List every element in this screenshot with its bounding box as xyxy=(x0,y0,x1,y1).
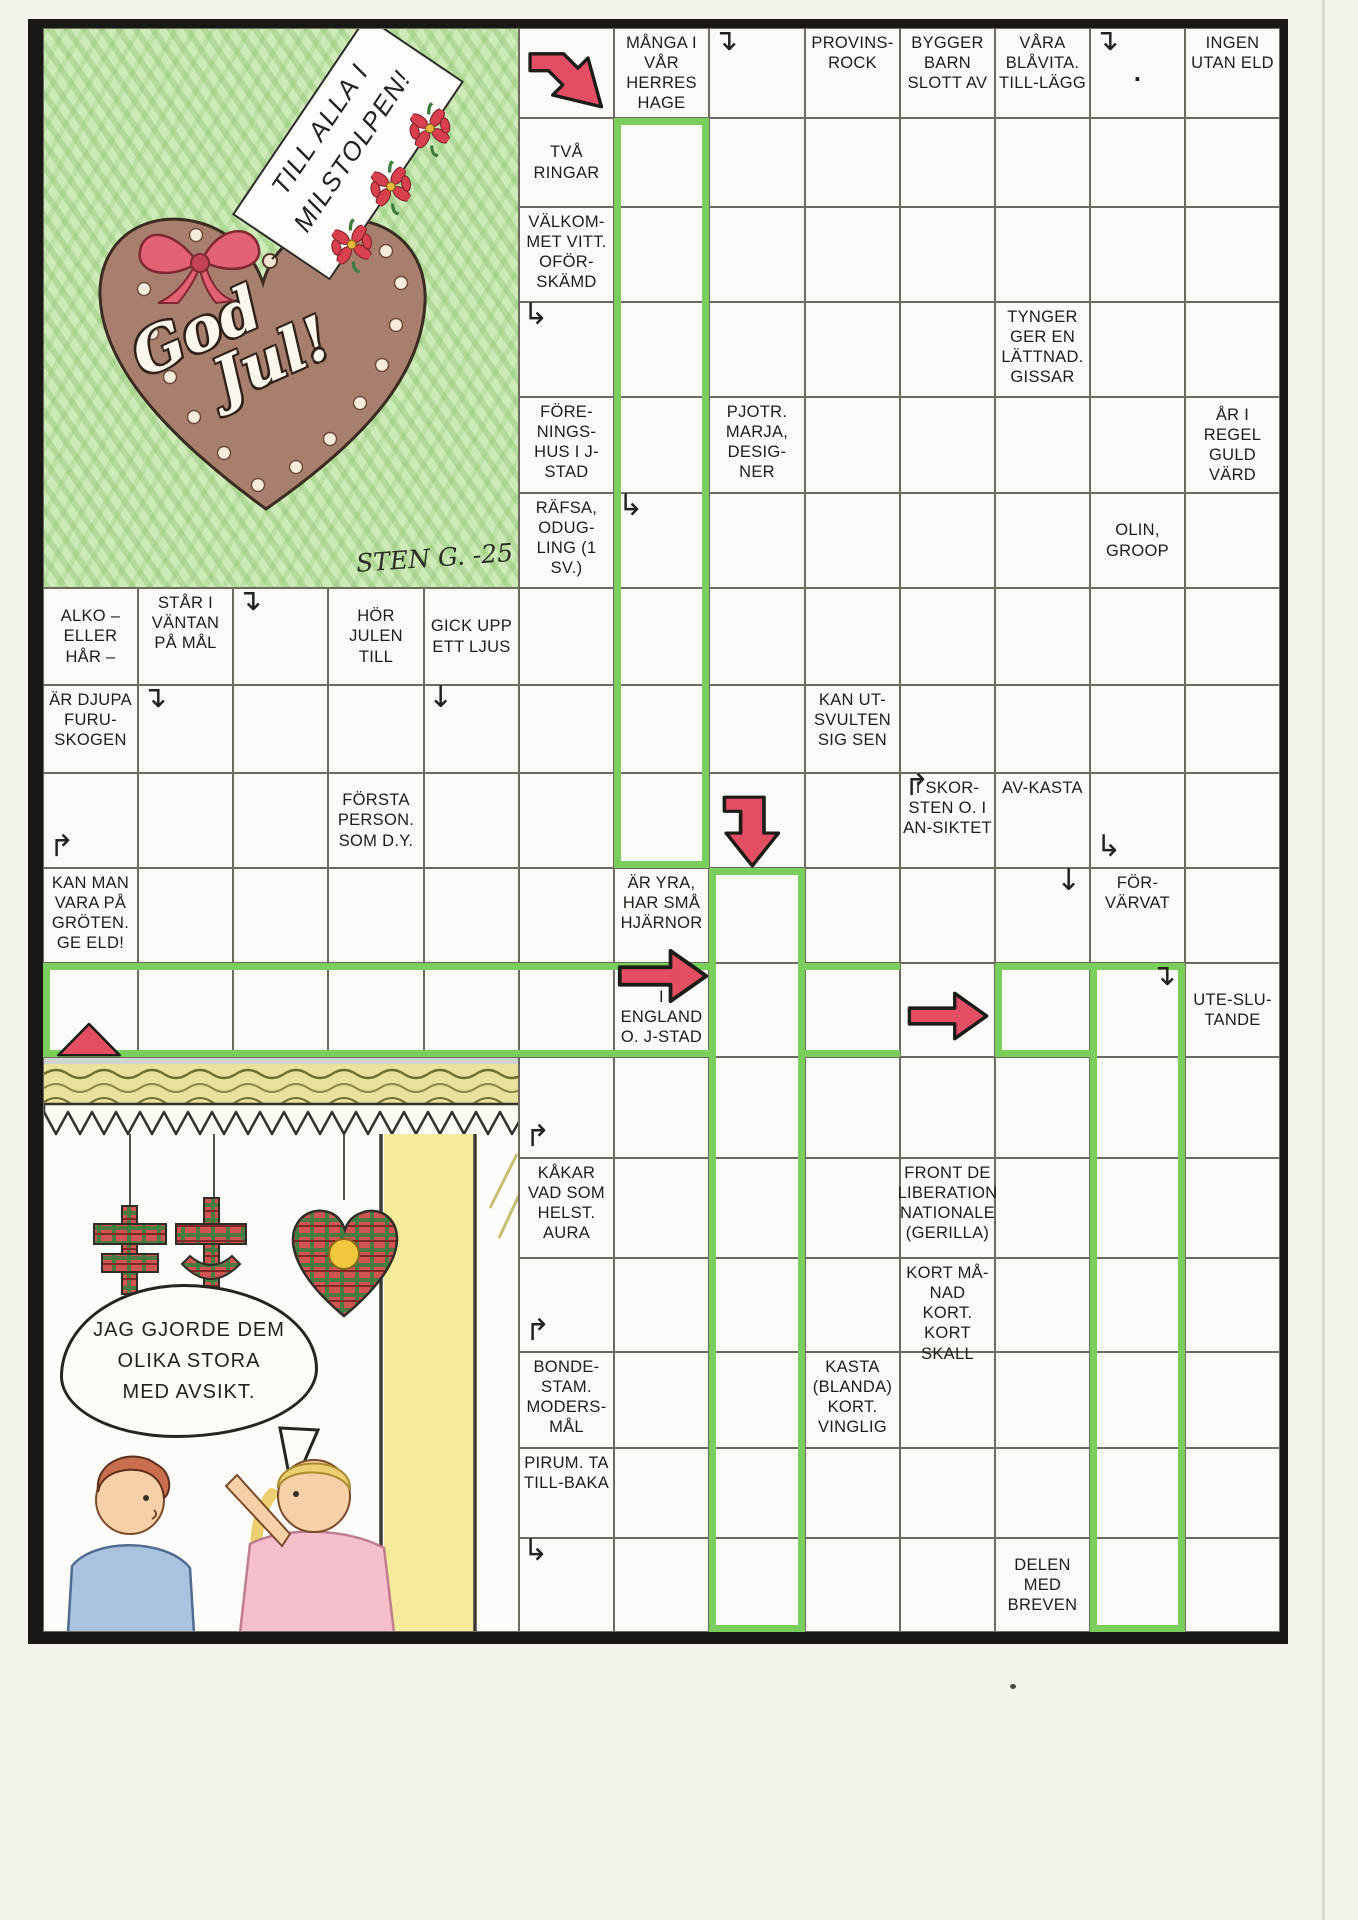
grid-cell[interactable] xyxy=(805,493,900,588)
grid-cell[interactable] xyxy=(614,302,709,397)
boy-character xyxy=(68,1457,194,1632)
grid-cell[interactable] xyxy=(1185,1158,1280,1258)
grid-cell[interactable] xyxy=(900,868,995,963)
cartoon-illustration: JAG GJORDE DEM OLIKA STORA MED AVSIKT. xyxy=(43,1057,519,1632)
grid-cell[interactable] xyxy=(995,588,1090,685)
grid-cell[interactable] xyxy=(709,1538,805,1632)
grid-cell[interactable] xyxy=(805,118,900,207)
grid-cell[interactable] xyxy=(519,1057,614,1158)
grid-cell[interactable] xyxy=(138,773,233,868)
red-triangle-up-icon xyxy=(55,1021,123,1057)
clue-cell: MÅNGA I VÅR HERRES HAGE xyxy=(614,28,709,118)
grid-cell[interactable] xyxy=(614,207,709,302)
grid-cell[interactable] xyxy=(995,963,1090,1057)
grid-cell[interactable] xyxy=(805,1538,900,1632)
plaid-cross-ornament xyxy=(94,1206,166,1294)
clue-cell: KAN UT-SVULTEN SIG SEN xyxy=(805,685,900,773)
grid-cell[interactable] xyxy=(900,588,995,685)
clue-cell: I SKOR-STEN O. I AN-SIKTET xyxy=(900,773,995,868)
grid-cell[interactable] xyxy=(1090,1057,1185,1158)
grid-cell[interactable] xyxy=(709,1448,805,1538)
grid-cell[interactable] xyxy=(233,685,328,773)
clue-cell: KAN MAN VARA PÅ GRÖTEN. GE ELD! xyxy=(43,868,138,963)
grid-cell[interactable] xyxy=(519,868,614,963)
grid-cell[interactable] xyxy=(805,868,900,963)
ribbon-bow-icon xyxy=(132,209,282,314)
grid-cell[interactable] xyxy=(43,773,138,868)
grid-cell[interactable] xyxy=(1185,1352,1280,1448)
speech-bubble-line1: JAG GJORDE DEM xyxy=(63,1315,315,1346)
grid-cell[interactable] xyxy=(900,397,995,493)
girl-character xyxy=(226,1460,394,1632)
grid-cell[interactable] xyxy=(424,963,519,1057)
clue-cell: FÖRSTA PERSON. SOM D.Y. xyxy=(328,773,424,868)
clue-cell: . xyxy=(1090,28,1185,118)
grid-cell[interactable] xyxy=(805,1448,900,1538)
grid-cell[interactable] xyxy=(1185,1448,1280,1538)
grid-cell[interactable] xyxy=(805,588,900,685)
grid-cell[interactable] xyxy=(424,685,519,773)
grid-cell[interactable] xyxy=(1185,302,1280,397)
red-arrow-right-icon xyxy=(616,946,710,1006)
grid-cell[interactable] xyxy=(900,685,995,773)
grid-cell[interactable] xyxy=(805,1158,900,1258)
grid-cell[interactable] xyxy=(995,1158,1090,1258)
grid-cell[interactable] xyxy=(1090,1352,1185,1448)
clue-cell: ALKO – ELLER HÅR – xyxy=(43,588,138,685)
clue-cell: KORT MÅ-NAD KORT. KORT SKALL xyxy=(900,1258,995,1352)
grid-cell[interactable] xyxy=(233,588,328,685)
grid-cell[interactable] xyxy=(138,685,233,773)
grid-cell[interactable] xyxy=(614,1258,709,1352)
clue-cell: ÅR I REGEL GULD VÄRD xyxy=(1185,397,1280,493)
grid-cell[interactable] xyxy=(1185,685,1280,773)
clue-cell: UTE-SLU-TANDE xyxy=(1185,963,1280,1057)
red-arrow-right-icon xyxy=(906,989,990,1043)
grid-cell[interactable] xyxy=(709,207,805,302)
grid-cell[interactable] xyxy=(1090,773,1185,868)
clue-cell: INGEN UTAN ELD xyxy=(1185,28,1280,118)
grid-cell[interactable] xyxy=(1185,773,1280,868)
grid-cell[interactable] xyxy=(805,207,900,302)
grid-cell[interactable] xyxy=(995,118,1090,207)
grid-cell[interactable] xyxy=(614,493,709,588)
grid-cell[interactable] xyxy=(1090,207,1185,302)
grid-cell[interactable] xyxy=(900,1057,995,1158)
grid-cell[interactable] xyxy=(424,773,519,868)
grid-cell[interactable] xyxy=(519,588,614,685)
grid-cell[interactable] xyxy=(900,493,995,588)
grid-cell[interactable] xyxy=(614,1057,709,1158)
grid-cell[interactable] xyxy=(900,207,995,302)
clue-cell: ÄR DJUPA FURU-SKOGEN xyxy=(43,685,138,773)
grid-cell[interactable] xyxy=(709,1158,805,1258)
clue-cell: TYNGER GER EN LÄTTNAD. GISSAR xyxy=(995,302,1090,397)
grid-cell[interactable] xyxy=(1185,207,1280,302)
scanned-crossword-page: MÅNGA I VÅR HERRES HAGEPROVINS-ROCKBYGGE… xyxy=(0,0,1358,1920)
grid-cell[interactable] xyxy=(614,118,709,207)
clue-cell: FÖRE-NINGS-HUS I J-STAD xyxy=(519,397,614,493)
clue-cell: STÅR I VÄNTAN PÅ MÅL xyxy=(138,588,233,685)
grid-cell[interactable] xyxy=(900,302,995,397)
clue-cell: AV-KASTA xyxy=(995,773,1090,868)
grid-border-top xyxy=(28,19,1288,28)
grid-cell[interactable] xyxy=(519,773,614,868)
plaid-anchor-ornament xyxy=(176,1198,246,1298)
grid-cell[interactable] xyxy=(709,963,805,1057)
clue-cell: PROVINS-ROCK xyxy=(805,28,900,118)
grid-cell[interactable] xyxy=(709,685,805,773)
grid-cell[interactable] xyxy=(1185,1258,1280,1352)
grid-cell[interactable] xyxy=(709,302,805,397)
clue-cell: OLIN, GROOP xyxy=(1090,493,1185,588)
grid-cell[interactable] xyxy=(805,397,900,493)
grid-cell[interactable] xyxy=(900,1352,995,1448)
grid-cell[interactable] xyxy=(614,773,709,868)
grid-cell[interactable] xyxy=(1090,1538,1185,1632)
grid-cell[interactable] xyxy=(1090,685,1185,773)
grid-cell[interactable] xyxy=(805,302,900,397)
clue-cell: HÖR JULEN TILL xyxy=(328,588,424,685)
red-arrow-down-icon xyxy=(719,791,791,869)
clue-cell: PJOTR. MARJA, DESIG-NER xyxy=(709,397,805,493)
grid-cell[interactable] xyxy=(995,685,1090,773)
ink-speck xyxy=(1010,1684,1016,1689)
clue-cell: BONDE-STAM. MODERS-MÅL xyxy=(519,1352,614,1448)
clue-cell: KASTA (BLANDA) KORT. VINGLIG xyxy=(805,1352,900,1448)
grid-cell[interactable] xyxy=(1090,588,1185,685)
clue-cell: RÄFSA, ODUG-LING (1 SV.) xyxy=(519,493,614,588)
grid-cell[interactable] xyxy=(233,773,328,868)
grid-border-right xyxy=(1280,19,1288,1644)
grid-cell[interactable] xyxy=(900,118,995,207)
grid-cell[interactable] xyxy=(995,397,1090,493)
clue-cell: VÅRA BLÅVITA. TILL-LÄGG xyxy=(995,28,1090,118)
grid-cell[interactable] xyxy=(424,868,519,963)
grid-cell[interactable] xyxy=(233,868,328,963)
grid-cell[interactable] xyxy=(709,493,805,588)
grid-cell[interactable] xyxy=(805,1057,900,1158)
grid-cell[interactable] xyxy=(614,1538,709,1632)
grid-cell[interactable] xyxy=(709,28,805,118)
grid-cell[interactable] xyxy=(1090,118,1185,207)
grid-cell[interactable] xyxy=(1185,1057,1280,1158)
grid-cell[interactable] xyxy=(519,685,614,773)
grid-cell[interactable] xyxy=(1185,868,1280,963)
grid-cell[interactable] xyxy=(709,1057,805,1158)
grid-cell[interactable] xyxy=(1090,1158,1185,1258)
christmas-heart-illustration: TILL ALLA I MILSTOLPEN! God Jul! STEN G.… xyxy=(43,28,519,588)
grid-cell[interactable] xyxy=(614,1352,709,1448)
grid-cell[interactable] xyxy=(1185,588,1280,685)
grid-cell[interactable] xyxy=(1090,302,1185,397)
clue-cell: PIRUM. TA TILL-BAKA xyxy=(519,1448,614,1538)
grid-cell[interactable] xyxy=(900,1538,995,1632)
grid-cell[interactable] xyxy=(1185,1538,1280,1632)
grid-cell[interactable] xyxy=(995,868,1090,963)
grid-cell[interactable] xyxy=(519,963,614,1057)
grid-cell[interactable] xyxy=(900,1448,995,1538)
grid-cell[interactable] xyxy=(1090,963,1185,1057)
grid-cell[interactable] xyxy=(995,207,1090,302)
clue-cell: DELEN MED BREVEN xyxy=(995,1538,1090,1632)
grid-cell[interactable] xyxy=(519,302,614,397)
grid-cell[interactable] xyxy=(328,963,424,1057)
grid-cell[interactable] xyxy=(138,868,233,963)
grid-cell[interactable] xyxy=(709,1352,805,1448)
grid-cell[interactable] xyxy=(709,868,805,963)
grid-cell[interactable] xyxy=(1090,1258,1185,1352)
grid-cell[interactable] xyxy=(805,1258,900,1352)
red-arrow-down-right-icon xyxy=(525,32,609,116)
grid-border-left xyxy=(28,19,43,1644)
speech-bubble-line2: OLIKA STORA xyxy=(63,1346,315,1377)
grid-cell[interactable] xyxy=(1090,1448,1185,1538)
grid-cell[interactable] xyxy=(995,1258,1090,1352)
grid-cell[interactable] xyxy=(709,588,805,685)
clue-cell: BYGGER BARN SLOTT AV xyxy=(900,28,995,118)
grid-cell[interactable] xyxy=(709,1258,805,1352)
clue-cell: FRONT DE LIBERATION NATIONALE (GERILLA) xyxy=(900,1158,995,1258)
grid-cell[interactable] xyxy=(614,397,709,493)
clue-cell: GICK UPP ETT LJUS xyxy=(424,588,519,685)
clue-cell: VÄLKOM-MET VITT. OFÖR-SKÄMD xyxy=(519,207,614,302)
grid-cell[interactable] xyxy=(519,1258,614,1352)
grid-cell[interactable] xyxy=(614,1448,709,1538)
grid-cell[interactable] xyxy=(1185,118,1280,207)
grid-border-bottom xyxy=(28,1632,1288,1644)
grid-cell[interactable] xyxy=(805,963,900,1057)
speech-bubble-line3: MED AVSIKT. xyxy=(63,1377,315,1408)
grid-cell[interactable] xyxy=(995,1352,1090,1448)
grid-cell[interactable] xyxy=(328,868,424,963)
grid-cell[interactable] xyxy=(614,1158,709,1258)
grid-cell[interactable] xyxy=(805,773,900,868)
clue-cell: TVÅ RINGAR xyxy=(519,118,614,207)
clue-cell: KÅKAR VAD SOM HELST. AURA xyxy=(519,1158,614,1258)
grid-cell[interactable] xyxy=(1185,493,1280,588)
grid-cell[interactable] xyxy=(328,685,424,773)
grid-cell[interactable] xyxy=(995,493,1090,588)
grid-cell[interactable] xyxy=(614,588,709,685)
grid-cell[interactable] xyxy=(138,963,233,1057)
grid-cell[interactable] xyxy=(1090,397,1185,493)
grid-cell[interactable] xyxy=(709,118,805,207)
clue-cell: FÖR-VÄRVAT xyxy=(1090,868,1185,963)
grid-cell[interactable] xyxy=(995,1448,1090,1538)
grid-cell[interactable] xyxy=(233,963,328,1057)
grid-cell[interactable] xyxy=(995,1057,1090,1158)
grid-cell[interactable] xyxy=(614,685,709,773)
grid-cell[interactable] xyxy=(519,1538,614,1632)
